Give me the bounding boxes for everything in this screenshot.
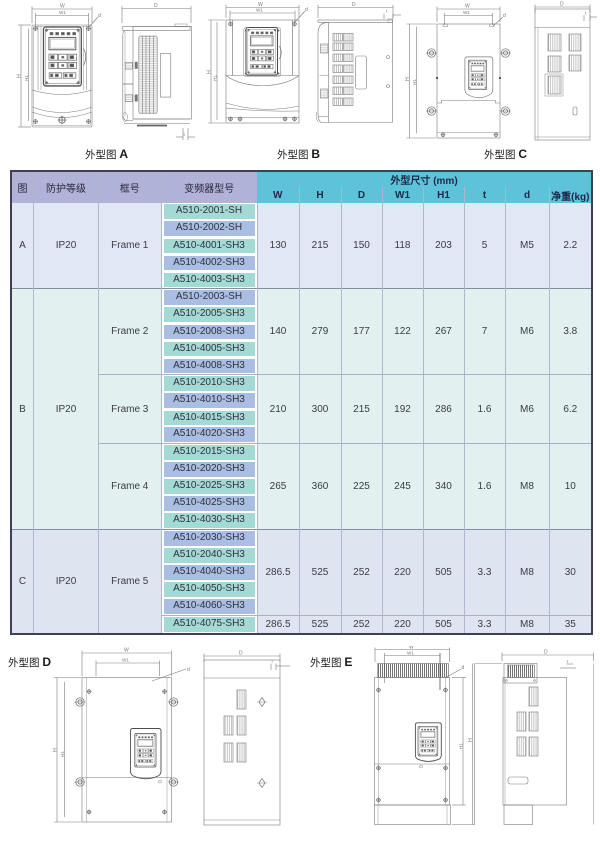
svg-text:外型图 A: 外型图 A: [85, 147, 128, 161]
svg-text:H1: H1: [459, 743, 464, 749]
svg-text:t: t: [585, 11, 587, 16]
svg-text:H: H: [207, 70, 213, 74]
svg-text:d: d: [462, 665, 465, 671]
svg-text:D: D: [239, 651, 243, 657]
svg-text:H1: H1: [24, 75, 29, 81]
svg-text:t: t: [272, 659, 274, 664]
svg-text:W1: W1: [122, 658, 129, 663]
svg-text:H: H: [17, 74, 23, 78]
svg-text:d: d: [305, 7, 308, 13]
svg-text:D: D: [544, 650, 548, 656]
svg-text:d: d: [503, 13, 506, 19]
svg-text:D: D: [154, 3, 158, 9]
svg-text:D: D: [560, 2, 564, 8]
svg-text:d: d: [187, 667, 190, 673]
svg-text:t: t: [386, 9, 388, 14]
svg-text:W1: W1: [256, 8, 263, 13]
svg-text:H1: H1: [60, 751, 65, 757]
svg-text:W1: W1: [463, 10, 470, 15]
svg-text:H: H: [53, 748, 59, 752]
svg-text:D: D: [352, 2, 356, 8]
svg-text:W: W: [60, 4, 65, 10]
svg-text:H1: H1: [213, 75, 218, 81]
svg-text:外型图 B: 外型图 B: [277, 147, 320, 161]
svg-text:H: H: [405, 77, 411, 81]
svg-text:d: d: [98, 13, 101, 19]
svg-text:外型图 E: 外型图 E: [310, 655, 352, 669]
svg-text:t: t: [184, 132, 186, 137]
svg-text:W: W: [465, 4, 470, 10]
svg-text:外型图 C: 外型图 C: [484, 147, 527, 161]
svg-text:H: H: [468, 738, 474, 742]
svg-text:H1: H1: [412, 79, 417, 85]
svg-text:W: W: [124, 648, 129, 654]
svg-text:W1: W1: [59, 10, 66, 15]
svg-text:W1: W1: [407, 651, 414, 656]
svg-text:外型图 D: 外型图 D: [8, 655, 51, 669]
svg-text:t: t: [567, 659, 569, 664]
